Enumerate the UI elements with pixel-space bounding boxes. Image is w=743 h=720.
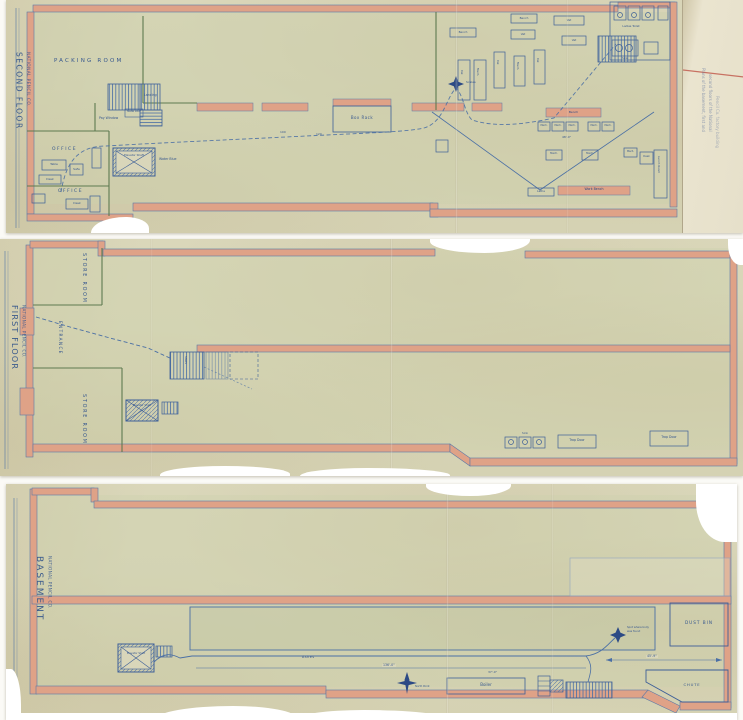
- basement-title: BASEMENT: [34, 556, 43, 621]
- safe-label: Safe: [70, 168, 83, 171]
- dim-136-label: 136'-0": [382, 664, 396, 667]
- mach-label: Mach.: [516, 62, 519, 70]
- scanned-blueprint-photo: SECOND FLOOR NATIONAL PENCIL CO. PACKING…: [0, 0, 743, 720]
- desk-label: Desk: [640, 156, 653, 159]
- dim-48-label: 48'-0": [562, 136, 571, 139]
- chute-label: CHUTE: [666, 683, 718, 687]
- mach-label: Mach.: [602, 125, 614, 127]
- desk-label: Desk: [66, 202, 88, 205]
- first-floor-title: FIRST FLOOR: [10, 305, 18, 370]
- entrance-label: ENTRANCE: [58, 321, 62, 355]
- vat-label: Vat: [554, 19, 584, 22]
- first-floor-subtitle: NATIONAL PENCIL CO.: [20, 305, 24, 370]
- body-spot-note-2: was found: [627, 631, 640, 634]
- work-bench-label: Work Bench: [558, 188, 630, 191]
- packing-room-label: PACKING ROOM: [54, 59, 123, 65]
- sheet-first-floor: FIRST FLOOR NATIONAL PENCIL CO. STORE RO…: [0, 239, 743, 476]
- elevator-shaft-label: Elevator Shaft: [117, 154, 151, 158]
- desk-label: Desk: [39, 178, 61, 181]
- metal-door-label: Metal Door: [125, 111, 143, 114]
- stairs-label: Stairs: [184, 356, 187, 364]
- basement-titleblock: BASEMENT NATIONAL PENCIL CO.: [34, 556, 50, 621]
- ashes-label: Ashes: [302, 656, 315, 659]
- mach-label: Mach.: [588, 125, 600, 127]
- basement-plan-drawing: [6, 484, 737, 720]
- flap-typed-note-3: Pencil Co. factory building: [715, 96, 720, 148]
- north-point-label: North Point: [415, 686, 430, 689]
- folded-corner-flap: Plans of the basement, first and second …: [682, 0, 743, 233]
- vat-label: Vat: [496, 60, 499, 65]
- mach-label: Mach.: [566, 125, 578, 127]
- flap-typed-note-1: Plans of the basement, first and: [701, 68, 706, 132]
- second-floor-subtitle: NATIONAL PENCIL CO.: [25, 52, 29, 130]
- trap-door-label: Trap Door: [650, 436, 688, 439]
- flap-red-line: [683, 0, 743, 233]
- lunch-room-label: Lunch Room: [657, 156, 660, 173]
- sink-label: Sink: [505, 432, 545, 435]
- mach-label: Mach.: [546, 153, 562, 156]
- first-floor-plan-drawing: [0, 239, 743, 476]
- dim-45-label: 45'-9": [646, 655, 658, 658]
- sink-label: Sink: [612, 57, 638, 60]
- dust-bin-label: DUST BIN: [670, 621, 728, 625]
- office-lower-label: OFFICE: [58, 190, 83, 195]
- sheet-second-floor: SECOND FLOOR NATIONAL PENCIL CO. PACKING…: [6, 0, 743, 233]
- mach-label: Mach.: [582, 153, 598, 156]
- flap-typed-note-2: second floors of the National: [708, 74, 713, 132]
- second-floor-title: SECOND FLOOR: [15, 52, 23, 130]
- sheet-basement: BASEMENT NATIONAL PENCIL CO. Elevator Sh…: [6, 484, 737, 720]
- dim-37-label: 37'-0": [488, 671, 497, 674]
- office-upper-label: OFFICE: [52, 148, 77, 153]
- store-room-bottom-label: STORE ROOM: [80, 394, 85, 445]
- landing-label: Landing: [144, 94, 157, 97]
- elevator-shaft-label: Elevator Shaft: [128, 404, 156, 407]
- mach-label: Mach.: [476, 68, 479, 76]
- ladies-toilet-label: Ladies Toilet: [606, 25, 656, 28]
- dim-120-label: 120: [316, 133, 322, 136]
- mach-label: Mach.: [552, 125, 564, 127]
- bench-label: Bench: [450, 31, 476, 34]
- mach-label: Mach.: [624, 151, 637, 153]
- vat-label: Vat: [536, 58, 539, 63]
- table-label: Table: [42, 163, 66, 166]
- lathe-label: Lathe: [528, 190, 554, 193]
- box-rack-label: Box Rack: [333, 116, 391, 120]
- basement-subtitle: NATIONAL PENCIL CO.: [46, 556, 50, 621]
- store-room-top-label: STORE ROOM: [80, 253, 85, 304]
- bench-label: Bench: [546, 111, 601, 114]
- bench-label: Bench: [511, 17, 537, 20]
- vat-label: Vat: [562, 39, 586, 42]
- boiler-label: Boiler: [447, 683, 525, 687]
- pay-window-label: Pay Window: [99, 117, 118, 120]
- trap-door-label: Trap Door: [558, 439, 596, 442]
- elevator-shaft-label: Elevator Shaft: [120, 652, 152, 655]
- dim-100-label: 100: [280, 131, 286, 134]
- scales-label: Scales: [466, 81, 476, 84]
- mach-label: Mach.: [538, 125, 550, 127]
- water-blue-label: Water Blue: [159, 158, 177, 161]
- first-floor-titleblock: FIRST FLOOR NATIONAL PENCIL CO.: [10, 305, 24, 370]
- vat-label: Vat: [511, 33, 535, 36]
- second-floor-titleblock: SECOND FLOOR NATIONAL PENCIL CO.: [15, 52, 29, 130]
- vat-label: Vat: [460, 70, 463, 75]
